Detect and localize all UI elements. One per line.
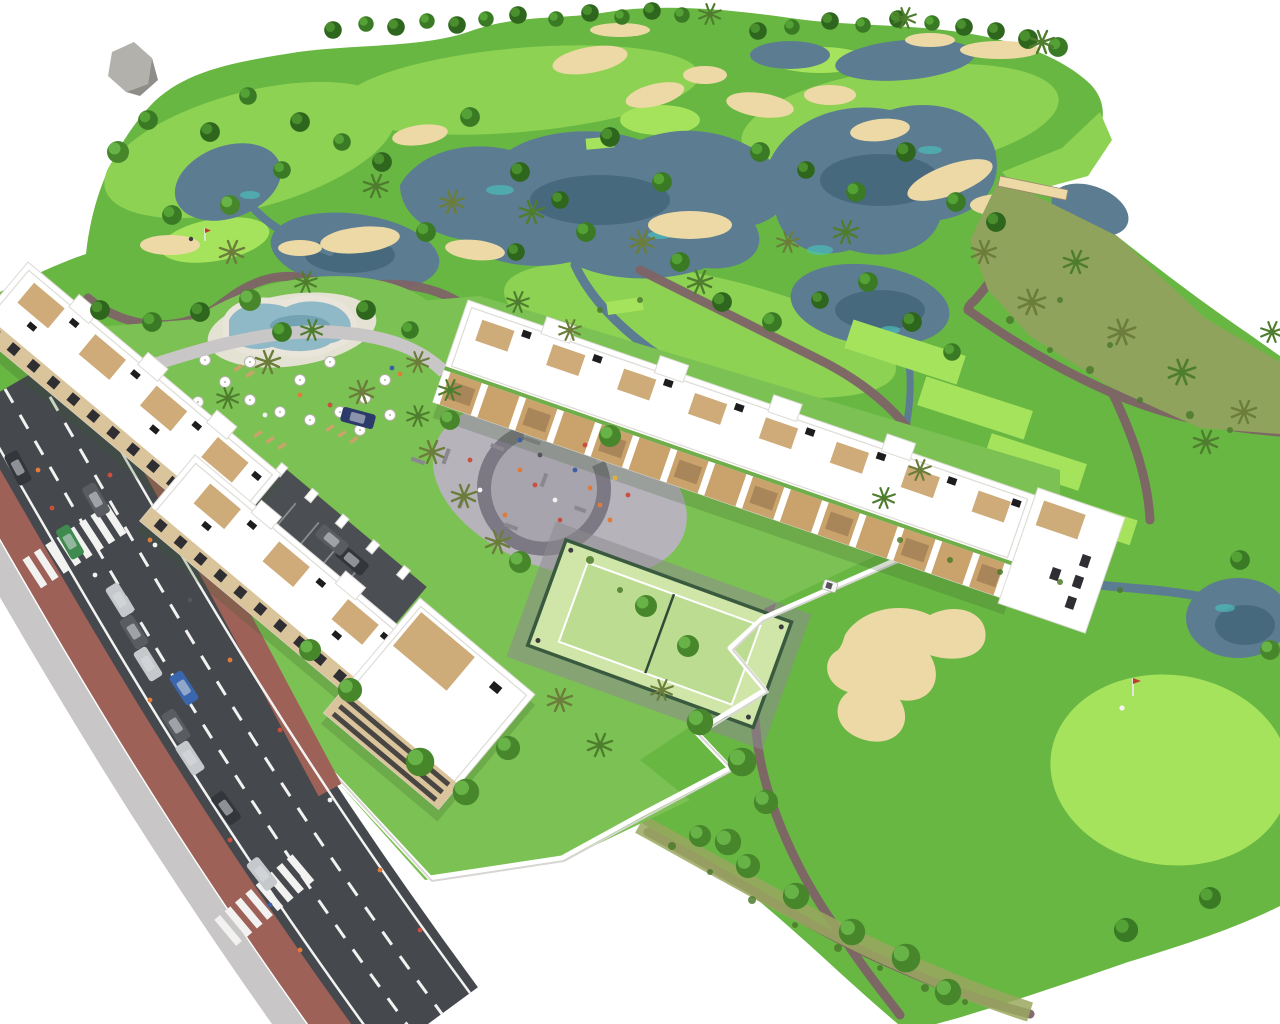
palm-crown	[462, 494, 466, 498]
tree	[387, 18, 405, 36]
golf-resort-aerial-render	[0, 0, 1280, 1024]
palm-crown	[230, 250, 234, 254]
palm-crown	[374, 184, 378, 188]
shrub	[597, 307, 603, 313]
shrub	[1137, 397, 1143, 403]
tree	[600, 127, 620, 147]
tree	[299, 639, 321, 661]
tree-highlight	[191, 303, 202, 314]
person	[478, 488, 483, 493]
tree	[272, 322, 292, 342]
tree-highlight	[944, 344, 954, 354]
person	[108, 473, 113, 478]
palm-crown	[496, 540, 500, 544]
tree-highlight	[1019, 30, 1030, 41]
palm-crown	[310, 328, 314, 332]
person	[418, 928, 423, 933]
shrub	[1227, 427, 1233, 433]
tree	[689, 825, 711, 847]
tree	[90, 300, 110, 320]
tree-highlight	[730, 750, 746, 766]
person	[328, 798, 333, 803]
tree-highlight	[653, 173, 664, 184]
palm-crown	[903, 16, 907, 20]
parasol-pole	[389, 414, 391, 416]
shrub	[1057, 579, 1063, 585]
tree	[510, 162, 530, 182]
person	[533, 483, 538, 488]
golfer	[1119, 705, 1124, 710]
palm-crown	[844, 230, 848, 234]
person	[588, 486, 593, 491]
tree	[448, 16, 466, 34]
tree	[372, 152, 392, 172]
tree-highlight	[1231, 551, 1242, 562]
tree-highlight	[947, 193, 958, 204]
tree-highlight	[455, 781, 469, 795]
tree	[674, 7, 689, 22]
tree-highlight	[273, 323, 284, 334]
person	[50, 506, 55, 511]
tree	[509, 551, 531, 573]
tree-highlight	[552, 192, 562, 202]
tree	[200, 122, 220, 142]
palm-crown	[1074, 260, 1078, 264]
person	[298, 948, 303, 953]
tree-highlight	[449, 17, 459, 27]
parasol-pole	[309, 419, 311, 421]
shrub	[897, 537, 903, 543]
water-highlight	[1215, 604, 1235, 612]
person	[613, 476, 618, 481]
tree-highlight	[417, 223, 428, 234]
tree-highlight	[143, 313, 154, 324]
palm-crown	[448, 388, 452, 392]
tree-highlight	[441, 411, 452, 422]
tree-highlight	[325, 22, 335, 32]
tree-highlight	[717, 831, 731, 845]
tree-highlight	[987, 213, 998, 224]
tree-highlight	[615, 10, 623, 18]
person	[468, 458, 473, 463]
water-highlight	[240, 191, 260, 199]
tree	[478, 11, 493, 26]
tree	[797, 161, 815, 179]
shrub	[1107, 342, 1113, 348]
tree-highlight	[274, 162, 284, 172]
tree-highlight	[644, 3, 654, 13]
person	[503, 513, 508, 518]
person	[608, 518, 613, 523]
tree-highlight	[903, 313, 914, 324]
tree-highlight	[847, 183, 858, 194]
tree	[811, 291, 829, 309]
tree	[324, 21, 342, 39]
shrub	[668, 842, 676, 850]
pond	[750, 41, 830, 69]
person	[626, 493, 631, 498]
tree-highlight	[359, 17, 367, 25]
tree-highlight	[637, 597, 649, 609]
person	[228, 658, 233, 663]
palm-crown	[598, 743, 602, 747]
tree-highlight	[713, 293, 724, 304]
shrub	[962, 999, 968, 1005]
tree	[712, 292, 732, 312]
sand-bunker	[683, 66, 727, 84]
tree	[987, 22, 1005, 40]
palm-crown	[982, 250, 986, 254]
tree-highlight	[479, 12, 487, 20]
shrub	[947, 557, 953, 563]
tree-highlight	[549, 12, 557, 20]
person	[558, 518, 563, 523]
shrub	[792, 922, 798, 928]
parasol	[305, 415, 316, 426]
person	[553, 498, 558, 503]
tree-highlight	[937, 981, 951, 995]
tree-highlight	[812, 292, 822, 302]
tree	[581, 4, 599, 22]
water-highlight	[807, 245, 833, 255]
tree	[190, 302, 210, 322]
tree	[453, 779, 479, 805]
tree	[460, 107, 480, 127]
tree-highlight	[856, 18, 864, 26]
person	[538, 453, 543, 458]
parasol	[220, 377, 231, 388]
water-highlight	[486, 185, 514, 195]
tree-highlight	[679, 637, 691, 649]
parasol-pole	[339, 411, 341, 413]
person	[390, 366, 395, 371]
golfer	[189, 237, 193, 241]
tree	[107, 141, 129, 163]
tree-highlight	[408, 750, 424, 766]
shrub	[748, 896, 756, 904]
tree	[762, 312, 782, 332]
tree-highlight	[357, 301, 368, 312]
tree	[955, 18, 973, 36]
person	[93, 573, 98, 578]
parasol	[325, 357, 336, 368]
water-highlight	[918, 146, 942, 154]
tree	[784, 19, 799, 34]
tree	[290, 112, 310, 132]
tree	[416, 222, 436, 242]
tree-highlight	[420, 14, 428, 22]
parasol	[380, 375, 391, 386]
tree-highlight	[897, 143, 908, 154]
palm-crown	[660, 688, 664, 692]
tree	[142, 312, 162, 332]
tree	[138, 110, 158, 130]
tree-highlight	[508, 244, 518, 254]
palm-crown	[226, 396, 230, 400]
rock-outcrop	[108, 42, 152, 92]
person	[228, 838, 233, 843]
tree-highlight	[461, 108, 472, 119]
tree	[220, 195, 240, 215]
tree-highlight	[201, 123, 212, 134]
tree-highlight	[689, 711, 703, 725]
person	[263, 413, 268, 418]
tree	[406, 748, 435, 777]
tree	[162, 205, 182, 225]
tree	[551, 191, 569, 209]
tree	[496, 736, 520, 760]
parasol-pole	[249, 361, 251, 363]
tree-highlight	[756, 792, 769, 805]
tree	[670, 252, 690, 272]
palm-crown	[640, 240, 644, 244]
tree-highlight	[511, 163, 522, 174]
tree	[356, 300, 376, 320]
tree-highlight	[763, 313, 774, 324]
tree	[548, 11, 563, 26]
tree-highlight	[402, 322, 412, 332]
tree	[1199, 887, 1221, 909]
sand-bunker	[905, 33, 955, 47]
shrub	[1047, 347, 1053, 353]
person	[518, 468, 523, 473]
deep-water	[530, 175, 670, 225]
tree-highlight	[1261, 641, 1272, 652]
palm-crown	[416, 414, 420, 418]
palm-crown	[1180, 370, 1184, 374]
tree	[821, 12, 839, 30]
palm-crown	[1242, 410, 1246, 414]
tree-highlight	[1201, 889, 1213, 901]
tree	[715, 829, 741, 855]
shrub	[1057, 297, 1063, 303]
tree-highlight	[750, 23, 760, 33]
palm-crown	[882, 496, 886, 500]
tree	[239, 87, 257, 105]
parasol-pole	[329, 361, 331, 363]
tree	[635, 595, 657, 617]
tree-highlight	[956, 19, 966, 29]
tree-highlight	[301, 641, 313, 653]
tree	[614, 9, 629, 24]
tree-highlight	[925, 16, 933, 24]
tree	[509, 6, 527, 24]
tree	[652, 172, 672, 192]
tree	[935, 979, 961, 1005]
tree	[855, 17, 870, 32]
person	[268, 903, 273, 908]
tree-highlight	[291, 113, 302, 124]
tree-highlight	[163, 206, 174, 217]
tree	[1114, 918, 1138, 942]
tree	[677, 635, 699, 657]
tree	[728, 748, 757, 777]
palm-crown	[304, 280, 308, 284]
tree-highlight	[91, 301, 102, 312]
parasol	[275, 407, 286, 418]
tree-highlight	[577, 223, 588, 234]
tree	[358, 16, 373, 31]
person	[518, 438, 523, 443]
parasol-pole	[197, 401, 199, 403]
tree	[576, 222, 596, 242]
person	[573, 468, 578, 473]
shrub	[707, 869, 713, 875]
tree-highlight	[675, 8, 683, 16]
person	[153, 543, 158, 548]
tree	[687, 709, 713, 735]
palm-crown	[360, 390, 364, 394]
person	[378, 868, 383, 873]
shrub	[834, 944, 842, 952]
tree-highlight	[241, 291, 253, 303]
palm-crown	[698, 280, 702, 284]
palm-crown	[430, 450, 434, 454]
tree-highlight	[601, 128, 612, 139]
tree	[643, 2, 661, 20]
tree	[1260, 640, 1280, 660]
tree	[839, 919, 865, 945]
palm-crown	[558, 698, 562, 702]
tree	[750, 142, 770, 162]
palm-crown	[1270, 330, 1274, 334]
tree	[239, 289, 261, 311]
tree-highlight	[1116, 920, 1129, 933]
tree-highlight	[240, 88, 250, 98]
tree	[273, 161, 291, 179]
palm-crown	[1120, 330, 1124, 334]
tree	[896, 142, 916, 162]
aerial-render	[0, 0, 1280, 1024]
tree-highlight	[738, 856, 751, 869]
tree-highlight	[510, 7, 520, 17]
person	[148, 538, 153, 543]
palm-crown	[530, 210, 534, 214]
shrub	[1117, 587, 1123, 593]
tree	[333, 133, 351, 151]
tree-highlight	[388, 19, 398, 29]
tree-highlight	[988, 23, 998, 33]
tree-highlight	[894, 946, 910, 962]
tree-highlight	[841, 921, 855, 935]
palm-crown	[516, 300, 520, 304]
tree-highlight	[691, 827, 703, 839]
tree	[946, 192, 966, 212]
person	[298, 393, 303, 398]
tree-highlight	[822, 13, 832, 23]
palm-crown	[786, 240, 790, 244]
sand-bunker	[648, 211, 732, 239]
tree	[507, 243, 525, 261]
parasol-pole	[299, 379, 301, 381]
tree-highlight	[798, 162, 808, 172]
tree	[986, 212, 1006, 232]
person	[398, 372, 403, 377]
tree	[943, 343, 961, 361]
palm-crown	[266, 360, 270, 364]
sand-bunker	[590, 23, 650, 37]
palm-crown	[568, 328, 572, 332]
tree-highlight	[601, 427, 613, 439]
tree-highlight	[139, 111, 150, 122]
parasol	[245, 395, 256, 406]
parasol-pole	[204, 359, 206, 361]
shrub	[637, 297, 643, 303]
tree-highlight	[334, 134, 344, 144]
tree	[440, 410, 460, 430]
person	[148, 698, 153, 703]
tree	[754, 790, 778, 814]
tree	[1230, 550, 1250, 570]
palm-crown	[416, 360, 420, 364]
tree	[858, 272, 878, 292]
tree	[783, 883, 809, 909]
tree-highlight	[859, 273, 870, 284]
tree-highlight	[109, 143, 121, 155]
tree-highlight	[785, 885, 799, 899]
tree	[924, 15, 939, 30]
tree-highlight	[373, 153, 384, 164]
tree-highlight	[785, 20, 793, 28]
tree	[401, 321, 419, 339]
sand-bunker	[278, 240, 322, 256]
tree-highlight	[671, 253, 682, 264]
shrub	[1006, 316, 1014, 324]
shrub	[997, 569, 1003, 575]
palm-crown	[450, 200, 454, 204]
tree	[338, 678, 362, 702]
tree	[846, 182, 866, 202]
tree-highlight	[340, 680, 353, 693]
sand-bunker	[804, 85, 856, 105]
shrub	[877, 965, 883, 971]
shrub	[1086, 366, 1094, 374]
tree-highlight	[751, 143, 762, 154]
tree-highlight	[221, 196, 232, 207]
parasol-pole	[279, 411, 281, 413]
tree	[599, 425, 621, 447]
tree	[736, 854, 760, 878]
tree-highlight	[498, 738, 511, 751]
tree-highlight	[582, 5, 592, 15]
parasol-pole	[384, 379, 386, 381]
person	[278, 728, 283, 733]
tree	[902, 312, 922, 332]
shrub	[921, 984, 929, 992]
palm-crown	[708, 12, 712, 16]
parasol	[385, 410, 396, 421]
person	[583, 443, 588, 448]
palm-crown	[1204, 440, 1208, 444]
shrub	[617, 587, 623, 593]
parasol-pole	[359, 429, 361, 431]
palm-crown	[918, 468, 922, 472]
palm-crown	[1030, 300, 1034, 304]
person	[36, 468, 41, 473]
tree	[749, 22, 767, 40]
tree-highlight	[511, 553, 523, 565]
parasol	[295, 375, 306, 386]
shrub	[586, 556, 594, 564]
palm-tree	[1261, 322, 1280, 342]
parasol-pole	[249, 399, 251, 401]
tree	[419, 13, 434, 28]
person	[598, 503, 603, 508]
person	[188, 598, 193, 603]
tree	[892, 944, 921, 973]
palm-crown	[1040, 40, 1044, 44]
parasol	[245, 357, 256, 368]
